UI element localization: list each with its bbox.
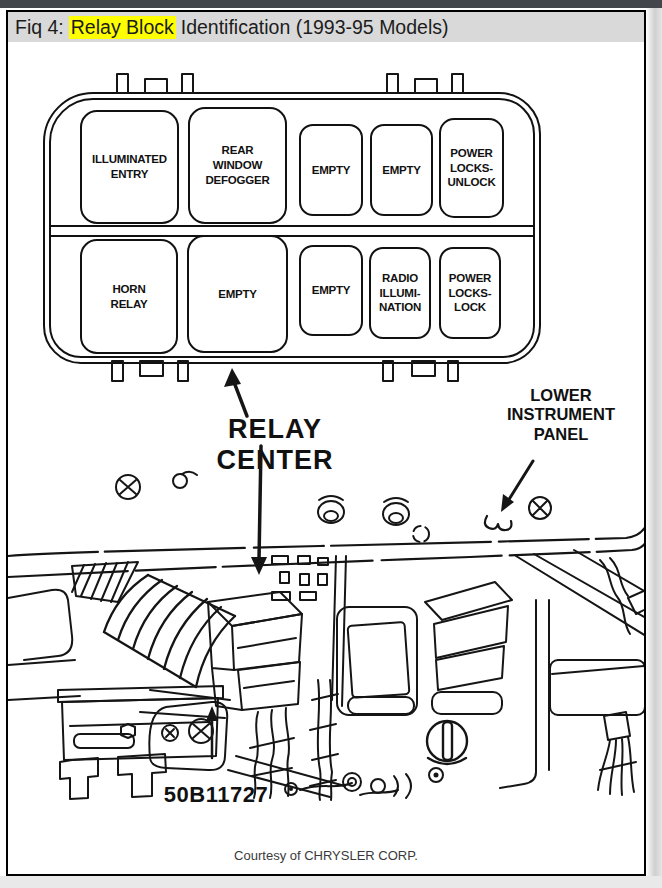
right-ledge bbox=[550, 660, 644, 715]
arrow-relay-center-up bbox=[224, 368, 247, 416]
rounded-module bbox=[332, 556, 417, 715]
figure-title-highlight: Relay Block bbox=[69, 16, 176, 39]
page: Fiq 4: Relay Block Identification (1993-… bbox=[0, 0, 662, 888]
relay-block-row-divider bbox=[49, 225, 535, 237]
panel-hole-right bbox=[383, 498, 409, 525]
slotted-knob bbox=[427, 721, 467, 764]
vertical-channel bbox=[500, 600, 549, 788]
right-diagonals bbox=[516, 550, 644, 636]
relay-diagram: ILLUMINATED ENTRY REAR WINDOW DEFOGGER E… bbox=[8, 42, 644, 874]
panel-hook-clip bbox=[485, 516, 512, 530]
phillips-screw-right bbox=[529, 497, 551, 519]
arrow-lower-instrument-panel bbox=[501, 461, 533, 512]
relay-slot-radio-illumination: RADIO ILLUMI- NATION bbox=[369, 247, 431, 339]
connector-pins bbox=[272, 556, 328, 600]
panel-edge-lines bbox=[8, 526, 644, 577]
relay-slot-power-locks-lock: POWER LOCKS- LOCK bbox=[439, 247, 501, 339]
relay-slot-empty-4: EMPTY bbox=[299, 245, 363, 336]
left-body-lines bbox=[8, 590, 230, 718]
figure-title-bar: Fiq 4: Relay Block Identification (1993-… bbox=[8, 12, 644, 42]
right-connector-wires bbox=[598, 712, 636, 795]
panel-hole-broken bbox=[413, 526, 429, 542]
phillips-screw-left bbox=[116, 475, 140, 499]
relay-slot-empty-1: EMPTY bbox=[299, 124, 363, 216]
page-right-edge bbox=[646, 8, 662, 888]
relay-slot-horn-relay: HORN RELAY bbox=[80, 239, 178, 354]
lower-instrument-panel-label: LOWER INSTRUMENT PANEL bbox=[456, 386, 662, 444]
wire-bundle-hatched bbox=[310, 680, 338, 800]
relay-slot-power-locks-unlock: POWER LOCKS- UNLOCK bbox=[439, 118, 504, 218]
figure-title-suffix: Identification (1993-95 Models) bbox=[181, 16, 449, 39]
arrow-part-number-up bbox=[206, 706, 218, 758]
window-top-bar bbox=[0, 0, 662, 8]
panel-hole-small bbox=[173, 474, 187, 488]
relay-center-module-stack bbox=[208, 592, 302, 710]
relay-slot-illuminated-entry: ILLUMINATED ENTRY bbox=[80, 110, 179, 224]
relay-block: ILLUMINATED ENTRY REAR WINDOW DEFOGGER E… bbox=[43, 92, 541, 364]
relay-slot-rear-window-defogger: REAR WINDOW DEFOGGER bbox=[188, 107, 287, 224]
figure-title-prefix: Fiq 4: bbox=[15, 16, 64, 39]
relay-center-label: RELAY CENTER bbox=[170, 414, 380, 476]
figure-frame: Fiq 4: Relay Block Identification (1993-… bbox=[6, 10, 646, 876]
part-number-label: 50B11727 bbox=[156, 782, 276, 808]
hatched-wedge bbox=[72, 562, 138, 602]
corrugated-duct bbox=[104, 575, 235, 687]
page-bottom-edge bbox=[0, 876, 662, 888]
mounting-boss bbox=[121, 702, 227, 770]
small-ring bbox=[429, 768, 443, 782]
slab-stack bbox=[425, 582, 512, 714]
relay-slot-empty-3: EMPTY bbox=[187, 235, 288, 353]
relay-slot-empty-2: EMPTY bbox=[370, 124, 433, 216]
panel-hole-left bbox=[318, 496, 344, 523]
credit-label: Courtesy of CHRYSLER CORP. bbox=[8, 848, 644, 863]
